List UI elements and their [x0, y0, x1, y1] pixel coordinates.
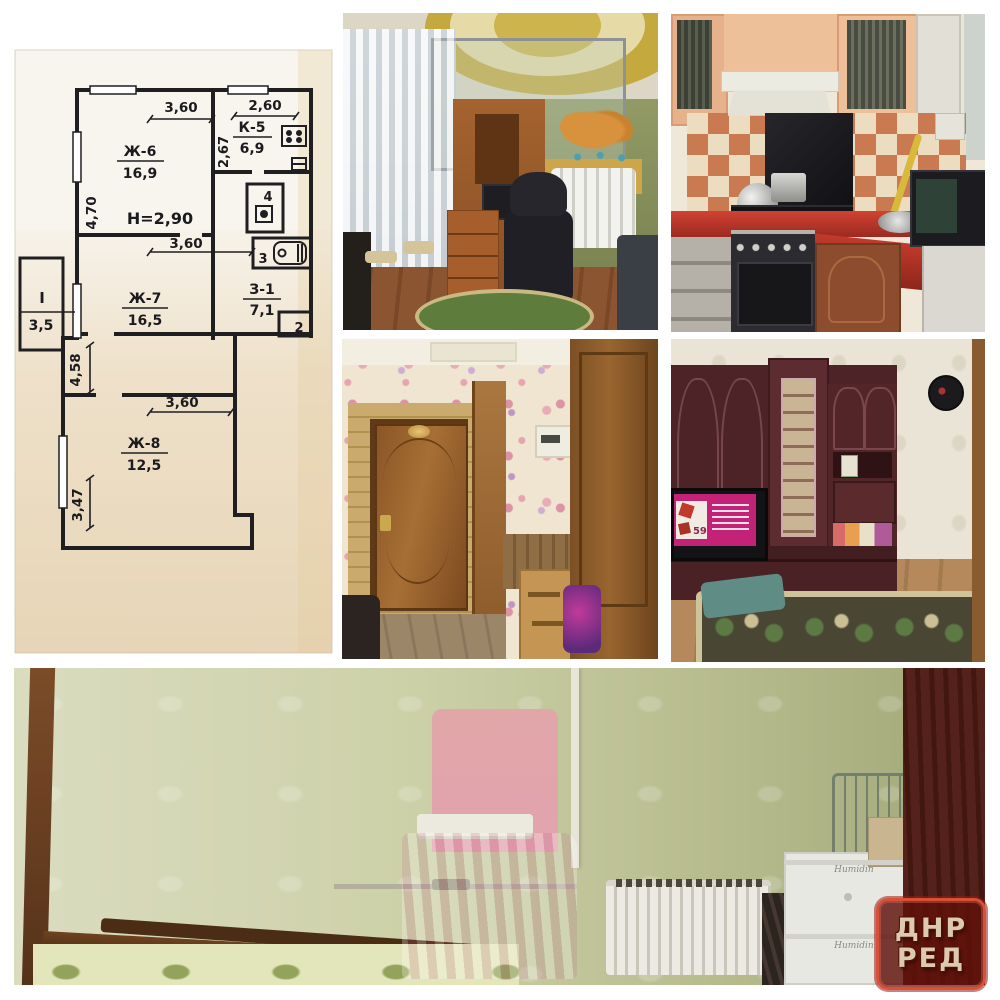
dim-room6-width: 3,60: [164, 100, 197, 116]
oven-door: [737, 262, 813, 326]
room7-id: Ж-7: [129, 291, 162, 307]
shelf-with-books: [833, 523, 893, 546]
sofa-corner: [617, 235, 658, 330]
chest-handle: [532, 621, 564, 626]
bureau-flap: [833, 481, 897, 524]
paper-shadow-right: [298, 50, 332, 653]
room6-id: Ж-6: [124, 144, 157, 160]
chest-label: Humidin: [810, 865, 897, 878]
upper-door: [864, 387, 896, 449]
dim-room7-width: 3,60: [169, 236, 202, 252]
cabinet-glass-left: [677, 20, 712, 109]
photo-hallway: [342, 339, 658, 659]
door-handle: [380, 515, 391, 531]
display-glass: [781, 378, 816, 537]
photo-bedroom: Humidin Humidin: [14, 668, 985, 985]
dim-kitchen-width: 2,60: [248, 98, 281, 114]
stove-back-panel: [765, 113, 853, 218]
tv-corner: [343, 232, 371, 330]
watermark-badge: ДНР РЕД: [876, 898, 986, 990]
watermark-line1: ДНР: [895, 915, 967, 943]
desk-shelf-opening: [475, 114, 519, 184]
ceiling-recess: [430, 342, 516, 362]
stool: [365, 251, 397, 264]
tv-ad-price: 59: [693, 526, 712, 539]
dim-corridor-depth: 4,58: [68, 353, 84, 386]
dim-kitchen-depth: 2,67: [217, 136, 232, 168]
tv-ad-text-lines: [712, 504, 750, 530]
cabinet-door-arc: [828, 256, 885, 324]
intercom-slot: [541, 435, 560, 443]
drawer-line: [448, 277, 498, 279]
ceiling-height-note: H=2,90: [127, 209, 193, 228]
chest-handle: [528, 592, 560, 597]
floor-plan-photo: 3,60 2,60 2,67 4,70 3,60 4,58 3,60 3,47 …: [0, 0, 345, 663]
closet-id: 2: [294, 321, 303, 336]
wc-id: 4: [263, 190, 272, 205]
bath-id: 3: [258, 252, 267, 267]
photo-room-with-desk: [343, 13, 658, 330]
purple-bag: [563, 585, 601, 652]
floor-plan-drawing: 3,60 2,60 2,67 4,70 3,60 4,58 3,60 3,47 …: [0, 0, 345, 663]
microwave-door: [916, 179, 957, 233]
wall-boiler: [935, 113, 965, 140]
drawer-row: [765, 546, 897, 559]
door-frame: [972, 339, 985, 662]
cabinet-glass-right: [847, 20, 907, 109]
photo-frame: [841, 455, 859, 476]
hall-id: З-1: [249, 282, 275, 298]
photo-kitchen: [671, 14, 985, 332]
office-chair-back: [510, 172, 567, 216]
lower-drawers-left: [671, 237, 731, 332]
room6-area: 16,9: [123, 166, 158, 182]
upper-cabinet-far-right: [916, 14, 961, 117]
clock-face: [933, 382, 951, 400]
balcony-area: 3,5: [29, 318, 54, 334]
cooker-hood-body: [721, 71, 839, 92]
dim-room8-depth: 3,47: [70, 488, 86, 521]
bags-on-floor: [342, 595, 380, 659]
dim-room6-depth: 4,70: [84, 196, 100, 229]
white-appliance: [922, 246, 985, 332]
stove-knobs: [734, 243, 813, 253]
radiator-top-grille: [616, 879, 762, 887]
hall-area: 7,1: [250, 303, 275, 319]
kitchen-id: К-5: [239, 120, 266, 136]
pot: [771, 173, 806, 202]
stool: [403, 241, 435, 254]
drawer-line: [448, 255, 498, 257]
inner-door: [472, 381, 507, 647]
tv-ad-product: [678, 522, 691, 535]
pink-blanket: [402, 833, 577, 979]
drawer-line: [448, 233, 498, 235]
upper-door: [833, 387, 865, 449]
dim-room8-width: 3,60: [165, 395, 198, 411]
photo-living-room: 59: [671, 339, 985, 662]
room8-area: 12,5: [127, 458, 162, 474]
watermark-line2: РЕД: [897, 945, 965, 973]
balcony-id: I: [39, 289, 45, 307]
room7-area: 16,5: [128, 313, 163, 329]
wardrobe-panel: [579, 352, 648, 608]
flower-decals: [570, 149, 633, 165]
chest-of-drawers: [447, 210, 499, 301]
radiator: [606, 880, 771, 975]
room8-id: Ж-8: [128, 436, 161, 452]
kitchen-area: 6,9: [240, 141, 265, 157]
photo-collage: 3,60 2,60 2,67 4,70 3,60 4,58 3,60 3,47 …: [0, 0, 1000, 1000]
